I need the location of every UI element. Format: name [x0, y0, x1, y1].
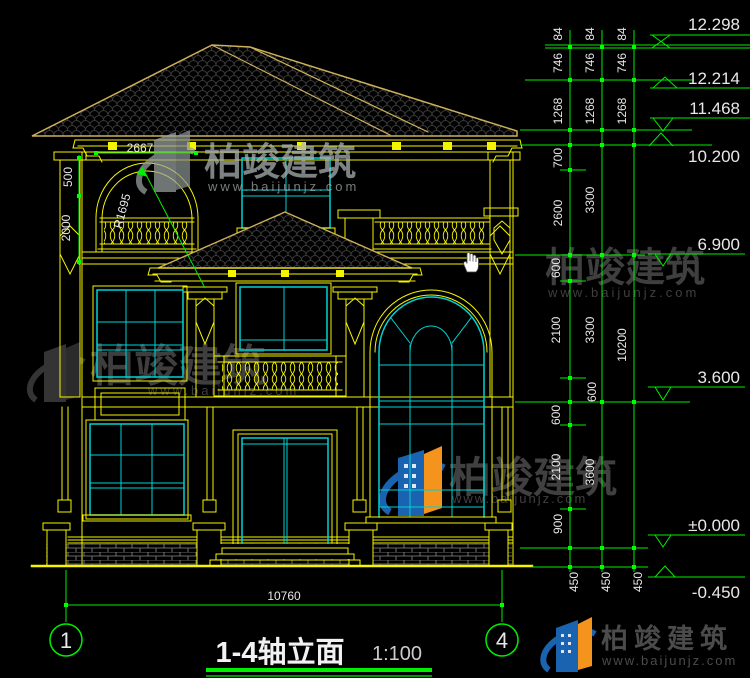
footer-brand: 柏竣建筑 www.baijunjz.com	[543, 617, 737, 672]
left-spandrel-panel	[95, 388, 185, 420]
balcony-railing	[214, 356, 346, 396]
column-shield-ornament	[196, 298, 214, 344]
dim-label: 900	[551, 514, 565, 534]
steps-cover	[211, 544, 359, 559]
porch-corbel-left	[148, 268, 171, 282]
overall-width-label: 10760	[267, 589, 301, 603]
column-shield-ornament	[346, 298, 364, 344]
dim-label: 10200	[615, 328, 629, 362]
dim-label: 84	[615, 27, 629, 41]
dim-label: 3300	[583, 316, 597, 343]
dim-label: 1268	[583, 97, 597, 124]
dim-label: 2100	[549, 316, 563, 343]
dim-label: 3300	[583, 186, 597, 213]
window-sill	[366, 517, 496, 523]
dim-label: 700	[551, 148, 565, 168]
first-floor-left-window	[83, 420, 191, 521]
dim-label: 2000	[59, 214, 73, 241]
dim-label: 600	[549, 405, 563, 425]
pier-shield-ornament	[494, 221, 510, 254]
balustrade	[378, 222, 486, 244]
cad-viewer-canvas[interactable]: 柏竣建筑 www.baijunjz.com 柏竣建筑 www.baijunjz.…	[0, 0, 750, 678]
dim-label: 2600	[551, 199, 565, 226]
elevation-label: ±0.000	[688, 516, 740, 535]
baijun-logo-icon	[139, 130, 194, 192]
porch-corbel-right	[399, 268, 422, 282]
level-symbol-11468	[653, 118, 673, 131]
pier-capital	[338, 210, 380, 218]
hand-cursor-icon	[464, 253, 479, 273]
dim-label: 1268	[551, 97, 565, 124]
dim-label: 450	[631, 572, 645, 592]
dim-label: 746	[551, 53, 565, 73]
dim-label: 600	[549, 258, 563, 278]
arch-width-label: 2667	[127, 141, 154, 155]
level-symbol-0000	[655, 535, 671, 547]
watermark-right-low: 柏竣建筑 www.baijunjz.com	[382, 446, 617, 516]
baijun-logo-icon	[30, 342, 84, 402]
dim-label: 450	[599, 572, 613, 592]
footer-brand-text: 柏竣建筑	[601, 623, 733, 654]
balustrade	[222, 362, 338, 390]
watermark-brand-text: 柏竣建筑	[204, 142, 356, 184]
dim-label: 3600	[583, 458, 597, 485]
elevation-label: 3.600	[697, 368, 740, 387]
dim-label: 2100	[549, 453, 563, 480]
axis-number-1: 1	[60, 628, 72, 653]
porch-column-left	[183, 287, 227, 512]
entry-door	[233, 430, 337, 550]
dim-label: 500	[61, 167, 75, 187]
title-block: 1-4轴立面 1:100	[206, 635, 432, 676]
elevation-label: 11.468	[689, 99, 740, 118]
left-pilaster	[54, 152, 86, 512]
level-symbol-m0450	[655, 566, 675, 577]
elevation-label: 12.298	[688, 15, 740, 34]
eave-corbel-right	[493, 140, 522, 162]
dim-label: 450	[567, 572, 581, 592]
elevation-label: 10.200	[688, 147, 740, 166]
level-symbol-12214	[653, 77, 677, 88]
watermark-url-text: www.baijunjz.com	[451, 491, 587, 506]
main-roof	[32, 45, 517, 136]
level-symbol-10200	[649, 133, 673, 146]
elevation-label: 12.214	[688, 69, 740, 88]
dim-label: 84	[583, 27, 597, 41]
dim-label: 746	[615, 53, 629, 73]
title-underline-thick	[206, 668, 432, 672]
elevation-drawing: 柏竣建筑 www.baijunjz.com 柏竣建筑 www.baijunjz.…	[0, 0, 750, 678]
dim-label: 1268	[615, 97, 629, 124]
watermark-brand-text: 柏竣建筑	[545, 246, 705, 290]
drawing-title: 1-4轴立面	[216, 635, 345, 669]
watermark-url-text: www.baijunjz.com	[207, 179, 359, 194]
drawing-scale: 1:100	[372, 643, 422, 665]
footer-url-text: www.baijunjz.com	[601, 653, 737, 668]
baijun-logo-icon	[382, 446, 444, 516]
elevation-label: 6.900	[697, 235, 740, 254]
baijun-logo-icon	[543, 617, 595, 672]
dim-label: 84	[551, 27, 565, 41]
level-symbol-12298	[652, 35, 670, 48]
level-symbol-3600	[655, 387, 671, 400]
porch-fascia	[148, 268, 422, 282]
dim-label: 600	[585, 382, 599, 402]
elevation-label: -0.450	[692, 583, 740, 602]
window-sill	[83, 515, 191, 521]
dim-label: 746	[583, 53, 597, 73]
axis-number-4: 4	[496, 628, 508, 653]
roof-level-lines	[545, 35, 750, 48]
